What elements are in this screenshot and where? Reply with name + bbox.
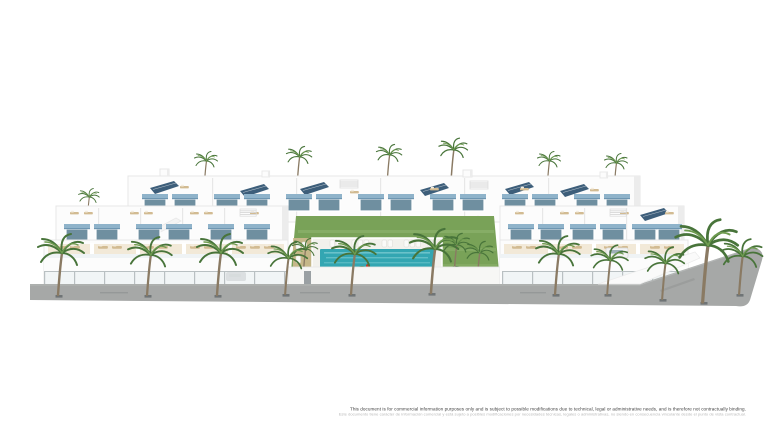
road-marking (300, 292, 330, 293)
disclaimer: This document is for commercial informat… (26, 406, 746, 417)
architectural-render (0, 0, 770, 433)
roof-vent (160, 169, 169, 176)
roof-vent (600, 172, 608, 178)
render-svg (0, 0, 770, 433)
road-marking (100, 292, 128, 293)
page: This document is for commercial informat… (0, 0, 770, 433)
road-marking (520, 292, 546, 293)
roof-vent (262, 171, 270, 177)
glass-rail (44, 254, 288, 258)
palm-tree (286, 146, 311, 180)
disclaimer-line-es: Este documento tiene carácter de informa… (26, 412, 746, 417)
courtyard-gate (304, 271, 311, 286)
palm-tree (376, 144, 401, 178)
roof-vent (463, 170, 472, 177)
central-courtyard (288, 216, 502, 287)
